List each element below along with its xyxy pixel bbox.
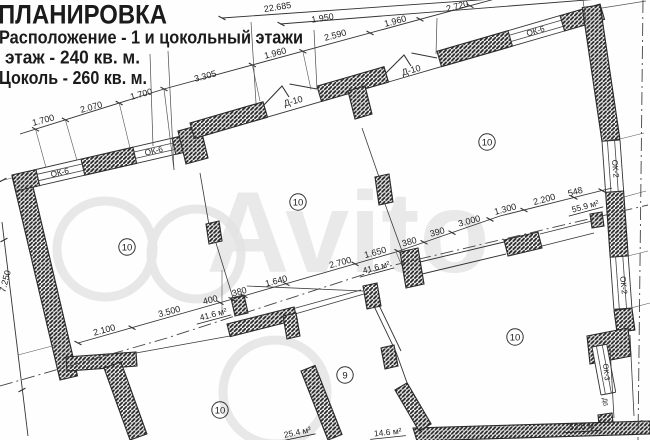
- svg-text:ОК-2: ОК-2: [610, 159, 621, 178]
- svg-text:Цоколь - 260 кв. м.: Цоколь - 260 кв. м.: [0, 68, 147, 88]
- svg-text:9: 9: [342, 370, 347, 381]
- svg-text:ОК-3: ОК-3: [601, 363, 612, 381]
- svg-text:ПЛАНИРОВКА: ПЛАНИРОВКА: [0, 0, 167, 30]
- svg-text:10: 10: [510, 332, 521, 343]
- svg-text:52.6 м²: 52.6 м²: [569, 420, 597, 432]
- svg-text:10: 10: [215, 405, 226, 416]
- svg-text:10: 10: [122, 242, 133, 253]
- svg-text:10: 10: [293, 197, 304, 208]
- svg-text:Avito: Avito: [206, 169, 489, 297]
- svg-text:10: 10: [482, 137, 493, 148]
- svg-text:Дб: Дб: [601, 397, 610, 406]
- svg-text:ОК-2: ОК-2: [618, 276, 629, 295]
- svg-text:Расположение - 1 и цокольный э: Расположение - 1 и цокольный этажи: [0, 28, 303, 48]
- svg-text:этаж - 240 кв. м.: этаж - 240 кв. м.: [5, 48, 140, 68]
